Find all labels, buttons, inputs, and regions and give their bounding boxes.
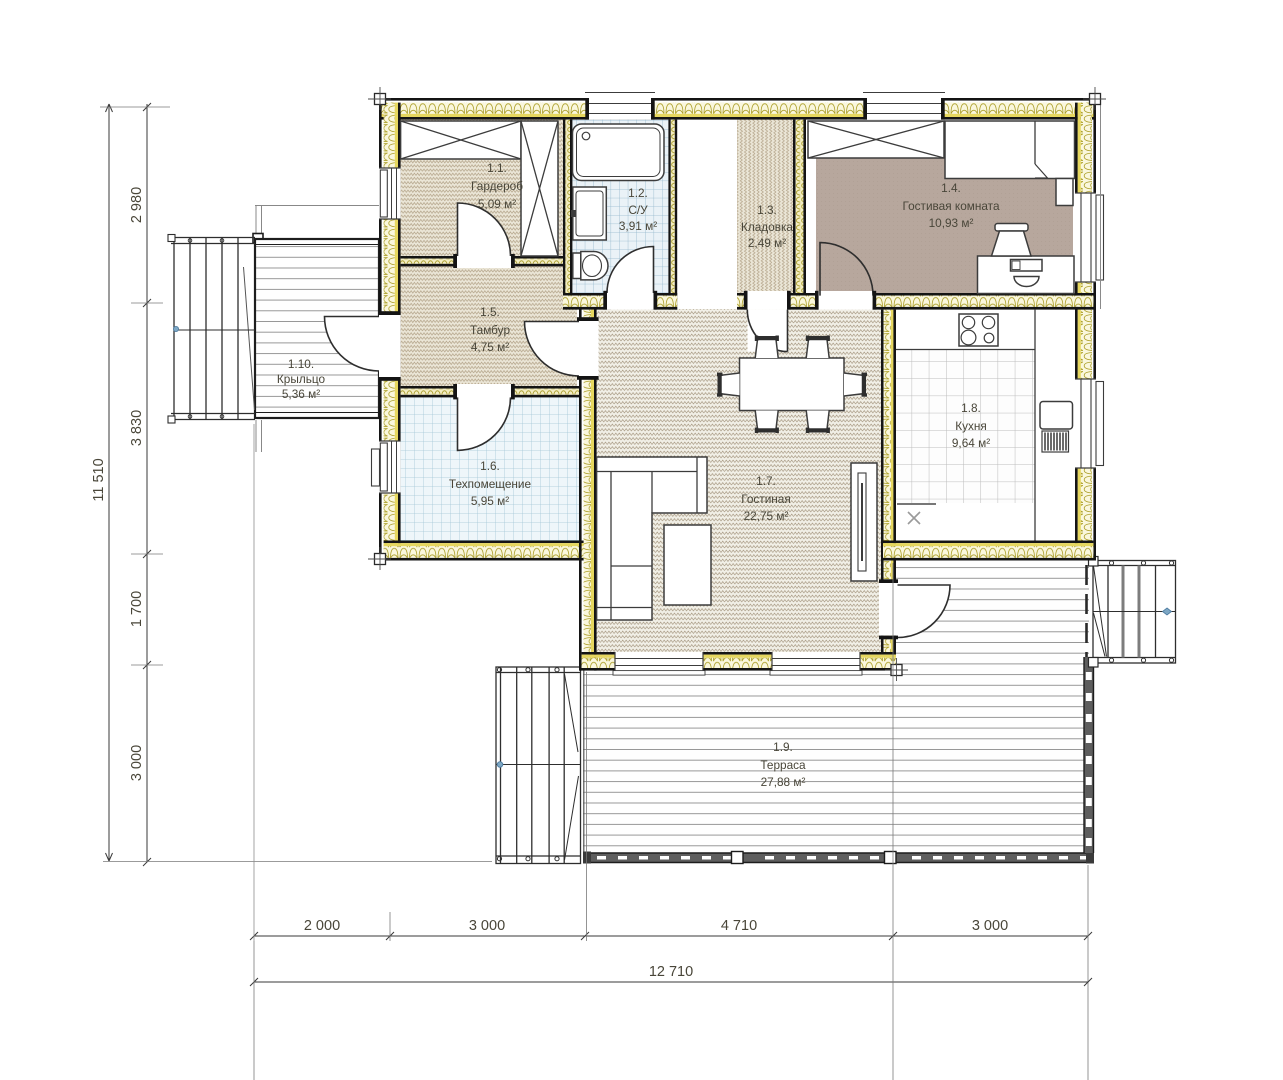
svg-text:1.6.: 1.6. bbox=[480, 459, 500, 473]
svg-text:1 700: 1 700 bbox=[129, 591, 145, 627]
svg-text:12 710: 12 710 bbox=[649, 964, 693, 980]
svg-text:5,09 м²: 5,09 м² bbox=[478, 197, 516, 211]
svg-text:3 000: 3 000 bbox=[469, 918, 505, 934]
svg-text:3 000: 3 000 bbox=[972, 918, 1008, 934]
svg-text:1.7.: 1.7. bbox=[756, 474, 776, 488]
svg-text:1.10.: 1.10. bbox=[288, 357, 314, 371]
svg-text:2 980: 2 980 bbox=[129, 187, 145, 223]
svg-text:2,49 м²: 2,49 м² bbox=[748, 236, 786, 250]
svg-text:Кладовка: Кладовка bbox=[741, 220, 793, 234]
svg-text:Терраса: Терраса bbox=[760, 758, 806, 772]
svg-text:С/У: С/У bbox=[628, 203, 648, 217]
svg-text:1.3.: 1.3. bbox=[757, 203, 777, 217]
svg-text:Кухня: Кухня bbox=[955, 419, 987, 433]
svg-text:1.1.: 1.1. bbox=[487, 161, 507, 175]
svg-text:27,88 м²: 27,88 м² bbox=[761, 775, 806, 789]
svg-text:3 000: 3 000 bbox=[129, 745, 145, 781]
svg-text:Гардероб: Гардероб bbox=[471, 179, 523, 193]
svg-text:Техпомещение: Техпомещение bbox=[449, 477, 532, 491]
svg-text:Крыльцо: Крыльцо bbox=[277, 372, 326, 386]
svg-text:1.8.: 1.8. bbox=[961, 401, 981, 415]
svg-text:3 830: 3 830 bbox=[129, 410, 145, 446]
svg-text:1.5.: 1.5. bbox=[480, 305, 500, 319]
svg-text:5,36 м²: 5,36 м² bbox=[282, 387, 320, 401]
svg-text:22,75 м²: 22,75 м² bbox=[744, 509, 789, 523]
svg-text:10,93 м²: 10,93 м² bbox=[929, 216, 974, 230]
svg-text:Гостиная: Гостиная bbox=[741, 492, 791, 506]
svg-text:Гостивая комната: Гостивая комната bbox=[902, 199, 999, 213]
svg-text:5,95 м²: 5,95 м² bbox=[471, 494, 509, 508]
svg-text:4,75 м²: 4,75 м² bbox=[471, 340, 509, 354]
svg-text:1.2.: 1.2. bbox=[628, 186, 648, 200]
svg-text:Тамбур: Тамбур bbox=[470, 323, 510, 337]
svg-text:3,91 м²: 3,91 м² bbox=[619, 219, 657, 233]
svg-text:11 510: 11 510 bbox=[91, 458, 107, 501]
svg-text:9,64 м²: 9,64 м² bbox=[952, 436, 990, 450]
svg-text:4 710: 4 710 bbox=[721, 918, 757, 934]
svg-text:1.4.: 1.4. bbox=[941, 181, 961, 195]
svg-text:2 000: 2 000 bbox=[304, 918, 340, 934]
svg-text:1.9.: 1.9. bbox=[773, 740, 793, 754]
